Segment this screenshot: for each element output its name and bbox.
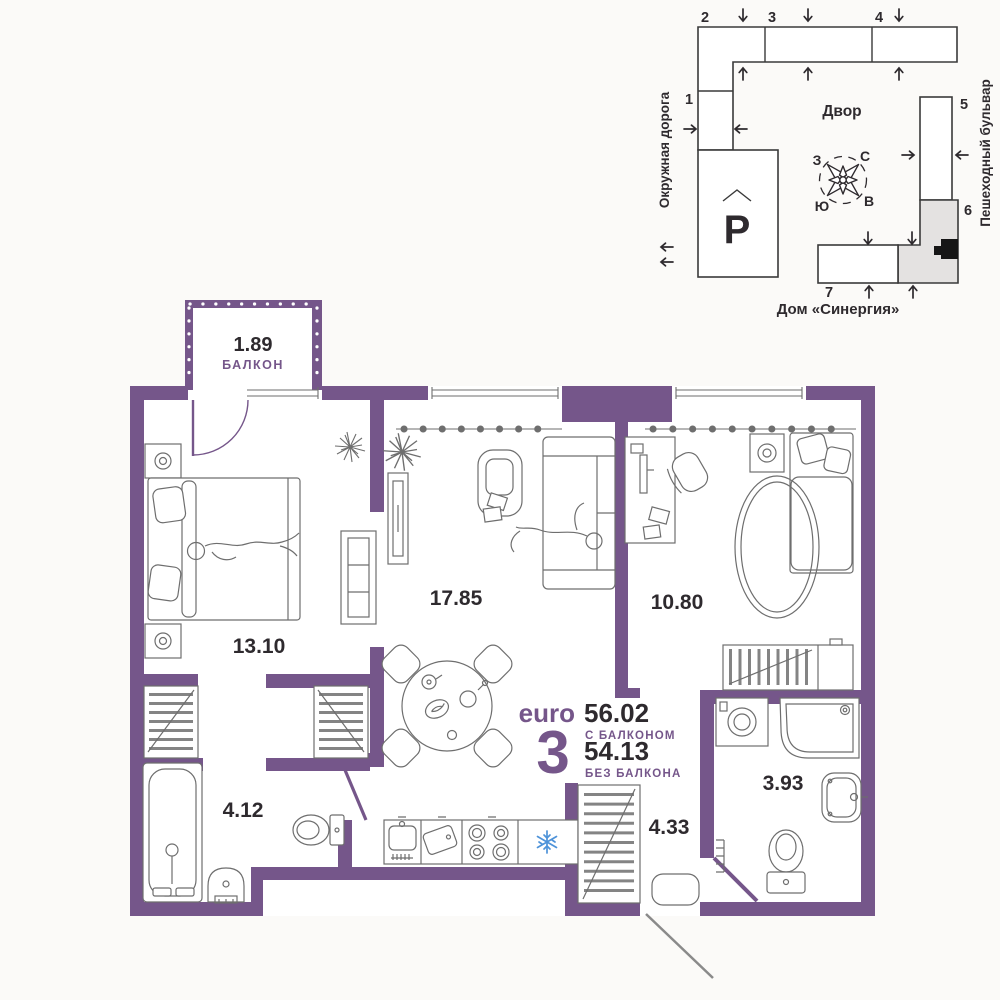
entry-wardrobe	[578, 785, 640, 903]
bathroom-large-area-label: 4.12	[223, 799, 264, 822]
wardrobe	[723, 639, 853, 690]
balcony-name-label: БАЛКОН	[222, 358, 284, 372]
dresser	[341, 531, 376, 624]
site-section-1-label: 1	[685, 92, 693, 108]
pedestal-sink	[208, 868, 244, 903]
pouf	[652, 874, 699, 905]
compass-icon: З С Ю В	[813, 148, 874, 214]
hall-closet-right	[314, 686, 368, 758]
site-section-7-label: 7	[825, 285, 833, 301]
street-left-label: Окружная дорога	[657, 91, 672, 208]
apartment-rooms-count: 3	[536, 719, 569, 786]
bathtub	[143, 763, 202, 902]
floor-plan: 13.10 17	[130, 300, 875, 978]
site-plan: P 2 3 4 1 5 6 7	[657, 9, 993, 318]
shower	[780, 698, 859, 758]
toilet	[293, 815, 344, 845]
area-without-balcony-label: БЕЗ БАЛКОНА	[585, 768, 681, 780]
compass-north: С	[860, 148, 870, 164]
hallway-area-label: 4.33	[649, 816, 690, 839]
single-bed	[790, 433, 853, 573]
desk	[625, 437, 675, 543]
armchair-with-table	[478, 450, 522, 522]
double-bed	[147, 478, 300, 620]
parking-icon: P	[724, 208, 751, 252]
floorplan-canvas: P 2 3 4 1 5 6 7	[0, 0, 1000, 1000]
site-section-7-block	[818, 245, 898, 283]
floorplan-page: P 2 3 4 1 5 6 7	[0, 0, 1000, 1000]
site-section-6-label: 6	[964, 203, 972, 219]
street-right-label: Пешеходный бульвар	[978, 79, 993, 227]
compass-west: З	[813, 152, 822, 168]
entry-door-line	[646, 914, 713, 978]
hall-closet-left	[144, 686, 198, 758]
site-section-2-label: 2	[701, 10, 709, 26]
compass-east: В	[864, 193, 874, 209]
kitchen-counter	[384, 817, 578, 864]
site-section-4-label: 4	[875, 10, 883, 26]
compass-south: Ю	[815, 198, 829, 214]
balcony-area-label: 1.89	[234, 334, 273, 356]
kids-area-label: 10.80	[651, 591, 704, 614]
bathroom-small-area-label: 3.93	[763, 772, 804, 795]
building-name-label: Дом «Синергия»	[777, 301, 900, 318]
bedroom-area-label: 13.10	[233, 635, 286, 658]
apartment-location-marker	[941, 239, 958, 259]
site-section-5-label: 5	[960, 97, 968, 113]
tv-panel	[388, 473, 408, 564]
courtyard-label: Двор	[822, 103, 861, 120]
living-area-label: 17.85	[430, 587, 483, 610]
apartment-location-marker-tab	[934, 246, 941, 255]
area-with-balcony-value: 56.02	[584, 698, 649, 728]
site-section-5-block	[920, 97, 952, 200]
washing-machine	[716, 698, 768, 746]
area-without-balcony-value: 54.13	[584, 736, 649, 766]
site-section-3-label: 3	[768, 10, 776, 26]
toilet	[767, 830, 805, 893]
